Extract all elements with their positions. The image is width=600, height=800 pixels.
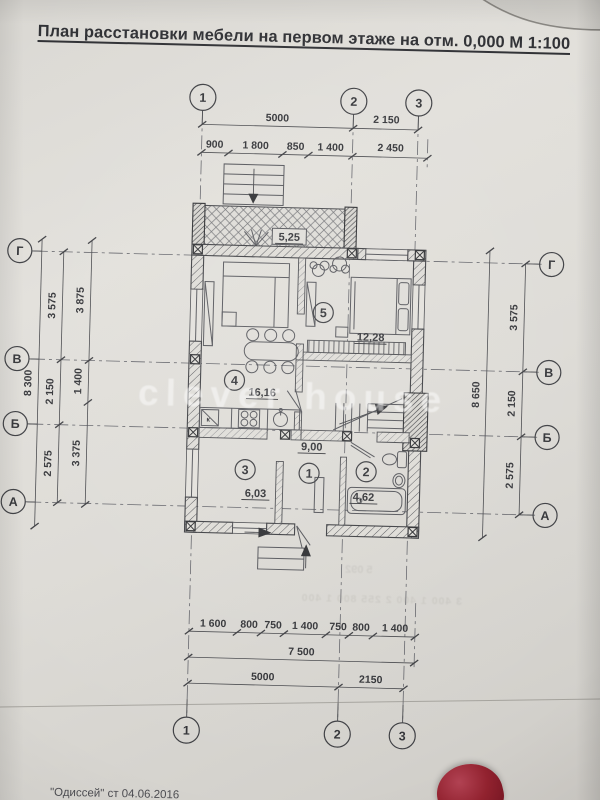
axis-3-top: 3: [415, 96, 422, 110]
dim-top-2450: 2 450: [377, 142, 404, 155]
room-3-area: 6,03: [245, 488, 267, 501]
dimensions-top: 5000 2 150 900 1 800 850 1 400 2 450: [197, 109, 432, 161]
toilet-icon: [382, 451, 406, 468]
axis-g-right: Г: [548, 258, 555, 272]
floor-plan-photo: План расстановки мебели на первом этаже …: [0, 0, 600, 800]
dim-left-ba: 2 575: [42, 450, 55, 477]
axis-bubbles-right: Г В Б А: [519, 252, 564, 528]
dim-right-gv: 3 575: [508, 304, 521, 331]
dim-left-vb: 2 150: [44, 378, 57, 405]
dim-bot-2150: 2150: [359, 674, 383, 687]
porch: 5,25: [192, 203, 357, 249]
room-5-number: 5: [320, 306, 327, 320]
dim-bot-800b: 800: [352, 621, 370, 633]
axis-g-left: Г: [16, 244, 23, 258]
room-1-area: 9,00: [301, 441, 323, 454]
dim-bot-1600: 1 600: [200, 617, 227, 630]
dim-bot-7500: 7 500: [288, 646, 315, 659]
footer-note: "Одиссей" ст 04.06.2016: [50, 787, 180, 800]
dim-left-inner-mid: 1 400: [72, 368, 85, 395]
axis-3-bottom: 3: [399, 729, 406, 743]
dim-right-ba: 2 575: [504, 462, 517, 489]
paper-fold-shadow: [478, 0, 600, 30]
axis-1-top: 1: [199, 91, 206, 105]
entrance-steps-top: [223, 164, 284, 206]
axis-a-right: А: [540, 509, 549, 523]
room-1-number: 1: [305, 467, 312, 481]
bleed-through-text-1: 5 092: [345, 564, 373, 577]
dim-bot-1400b: 1 400: [382, 622, 409, 635]
hall-cabinet: [314, 477, 324, 512]
dimensions-left: 8 300 3 575 2 150 2 575 3 875 1 400 3 37…: [19, 236, 97, 531]
dim-top-5000: 5000: [266, 112, 290, 125]
room-5-area: 12,28: [357, 331, 385, 344]
axis-v-right: В: [544, 366, 553, 380]
dim-left-inner-top: 3 875: [74, 287, 87, 314]
dim-bot-1400a: 1 400: [292, 620, 319, 633]
bathroom-sink-icon: [393, 473, 405, 487]
axis-v-left: В: [12, 352, 21, 366]
room-3-number: 3: [241, 463, 248, 477]
dim-top-1400: 1 400: [317, 141, 344, 154]
dim-left-gv: 3 575: [46, 292, 59, 319]
axis-b-right: Б: [542, 431, 551, 445]
dim-left-total: 8 300: [22, 369, 35, 396]
paper-crease: [0, 699, 600, 707]
dimensions-bottom: 1 600 800 750 1 400 750 800 1 400 7 500 …: [183, 617, 420, 723]
axis-2-top: 2: [350, 95, 357, 109]
dim-right-vb: 2 150: [506, 390, 519, 417]
room-2-area: 4,62: [353, 491, 375, 504]
dim-top-1800: 1 800: [242, 139, 269, 152]
dim-top-850: 850: [287, 141, 305, 153]
axis-b-left: Б: [11, 417, 20, 431]
door-swing-bathroom: [351, 442, 375, 458]
bed: [350, 277, 411, 335]
axis-1-bottom: 1: [183, 724, 190, 738]
dim-bot-5000: 5000: [251, 671, 275, 684]
porch-area-label: 5,25: [278, 231, 300, 244]
axis-2-bottom: 2: [334, 728, 341, 742]
dim-left-inner-bot: 3 375: [70, 440, 83, 467]
wall-unit: [203, 281, 214, 345]
nightstand: [336, 327, 348, 337]
axis-bubbles-bottom: 1 2 3: [173, 717, 416, 749]
room-2-number: 2: [362, 465, 369, 479]
dim-bot-750b: 750: [329, 621, 347, 633]
dining-table: [244, 329, 299, 374]
sofa: [222, 262, 290, 328]
axis-a-left: А: [9, 495, 18, 509]
dim-top-900: 900: [206, 138, 224, 150]
kitchen-k-label: к: [206, 417, 210, 424]
dim-bot-800a: 800: [240, 619, 258, 631]
dim-top-2150: 2 150: [373, 114, 400, 127]
dim-bot-750a: 750: [264, 619, 282, 631]
watermark: clever house: [138, 372, 479, 422]
bedroom-wardrobe: [306, 282, 316, 326]
